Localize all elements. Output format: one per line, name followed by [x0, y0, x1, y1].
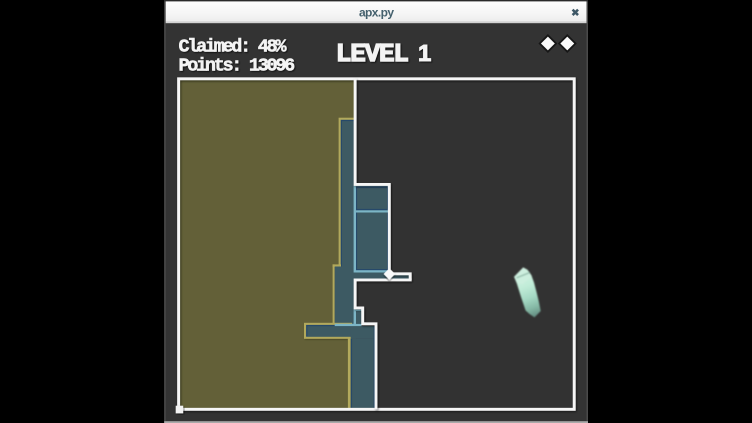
svg-text:apx.py: apx.py: [359, 5, 394, 19]
svg-text:Points: 13096: Points: 13096: [179, 56, 296, 77]
svg-text:1: 1: [418, 40, 431, 66]
svg-text:LEVEL: LEVEL: [336, 39, 409, 69]
svg-text:Claimed: 48%: Claimed: 48%: [179, 37, 288, 58]
svg-text:✖: ✖: [571, 8, 579, 19]
